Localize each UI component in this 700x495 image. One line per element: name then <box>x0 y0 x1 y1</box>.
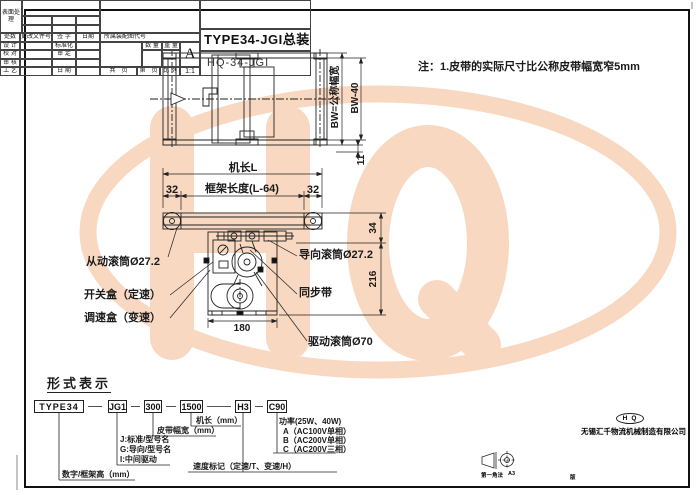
title-block-assembly-code: 所属装配图代号 <box>100 33 200 42</box>
projection-label: 第一角法 <box>481 471 503 479</box>
designation-label-i: I:中间驱动 <box>120 456 157 464</box>
title-block-pages-no: 第 页 <box>137 67 160 76</box>
title-block-version: A <box>180 42 200 68</box>
designation-label-length: 机长（mm） <box>196 417 242 425</box>
designation-label-belt-width: 皮带幅宽（mm） <box>157 427 219 435</box>
designation-label-power-a: A（AC100V单相） <box>283 428 351 436</box>
dim-bw-minus-40: BW-40 <box>351 83 361 114</box>
title-block-blank <box>52 59 76 68</box>
title-block-scale-value: 1:1 <box>180 67 200 76</box>
designation-label-j: J:标准/型号名 <box>120 436 169 444</box>
label-switch-box: 开关盒（定速） <box>84 290 161 301</box>
dim-belt-nominal-width: BW=公称幅宽 <box>331 66 341 129</box>
dim-180: 180 <box>234 324 251 334</box>
title-block-blank <box>142 50 162 67</box>
label-speed-box: 调速盒（变速） <box>84 313 161 324</box>
projection-symbol-icon <box>482 451 516 469</box>
title-block-col-count: 处数 <box>0 33 20 42</box>
title-block-blank <box>76 59 100 68</box>
title-block-blank <box>76 16 100 25</box>
designation-seg-type: TYPE34 <box>34 400 84 413</box>
label-driven-roller: 从动滚筒Ø27.2 <box>86 257 160 268</box>
drawing-number: HQ-34-JGI <box>200 51 311 76</box>
designation-label-g: G:导向/型号名 <box>120 446 171 454</box>
designation-label-speed-mark: 速度标记（定速/T、变速/H） <box>193 463 296 471</box>
designation-label-power: 功率(25W、40W) <box>279 418 341 426</box>
title-block-blank <box>22 16 52 25</box>
title-block-row-date: 日 期 <box>52 67 76 76</box>
label-drive-roller: 驱动滚筒Ø70 <box>308 337 373 348</box>
title-block-blank <box>76 50 100 59</box>
designation-seg-length: 1500 <box>180 400 203 413</box>
title-block-blank <box>20 67 52 76</box>
title-block-blank <box>76 25 100 34</box>
title-block-row-approve: 审 定 <box>52 50 76 59</box>
title-block-blank <box>20 59 52 68</box>
title-block-row-design: 设 计 <box>0 42 20 51</box>
designation-label-power-c: C（AC200V三相） <box>283 446 351 454</box>
title-block-pages-total: 共 页 <box>100 67 137 76</box>
title-block-surface-treatment: 表面处理 <box>0 0 22 33</box>
label-guide-roller: 导向滚筒Ø27.2 <box>299 250 373 261</box>
drawing-title: TYPE34-JGI总装图 <box>200 29 311 51</box>
dim-11: 11 <box>357 155 367 166</box>
dim-32-left: 32 <box>166 185 178 196</box>
sheet-size: A3 <box>508 471 515 477</box>
title-block-blank <box>22 0 100 16</box>
title-block-blank <box>76 42 100 51</box>
title-block-blank <box>100 0 200 33</box>
drawing-sheet: 注：1.皮带的实际尺寸比公称皮带幅宽窄5mm BW=公称幅宽 BW-40 11 … <box>0 0 700 495</box>
title-block-blank <box>162 50 180 67</box>
company-logo: HQ <box>616 413 644 424</box>
dim-machine-length: 机长L <box>229 163 258 174</box>
designation-label-power-b: B（AC200V单相） <box>283 437 351 445</box>
title-block-col-sign: 签 字 <box>52 33 76 42</box>
title-block-row-review: 审 核 <box>0 59 20 68</box>
title-block-row-process: 工 艺 <box>0 67 20 76</box>
title-block-qty: 数 量 <box>142 42 162 51</box>
designation-seg-model: JG1 <box>108 400 127 413</box>
designation-label-frame-height: 数字/框架高（mm） <box>62 471 134 479</box>
title-block-blank <box>76 67 100 76</box>
label-sync-belt: 同步带 <box>299 288 332 299</box>
title-block-row-standard: 标准化 <box>52 42 76 51</box>
title-block-scale-label: 比 例 <box>160 67 180 76</box>
dim-34: 34 <box>369 222 379 233</box>
title-block-blank <box>20 42 52 51</box>
company-name: 无锡汇千物流机械制造有限公司 <box>579 426 688 437</box>
title-block-weight: 重 量 <box>162 42 180 51</box>
title-block-row-check: 校 对 <box>0 50 20 59</box>
designation-seg-power: C90 <box>267 400 287 413</box>
title-block-blank <box>20 50 52 59</box>
dim-216: 216 <box>369 271 379 288</box>
designation-seg-width: 300 <box>144 400 162 413</box>
company-cell <box>200 0 311 29</box>
drawing-note: 注：1.皮带的实际尺寸比公称皮带幅宽窄5mm <box>418 62 640 73</box>
title-block-blank <box>52 16 76 25</box>
title-block-col-date: 日期 <box>76 33 100 42</box>
designation-title: 形式表示 <box>47 377 111 393</box>
version-suffix: 版 <box>570 473 576 481</box>
dim-32-right: 32 <box>307 185 319 196</box>
dim-frame-length: 框架长度(L-64) <box>205 184 279 195</box>
title-block-blank <box>22 25 52 34</box>
title-block-blank <box>52 25 76 34</box>
title-block-col-doc: 更改文件号 <box>20 33 52 42</box>
projection-cell <box>100 42 142 68</box>
designation-seg-speed: H3 <box>235 400 251 413</box>
